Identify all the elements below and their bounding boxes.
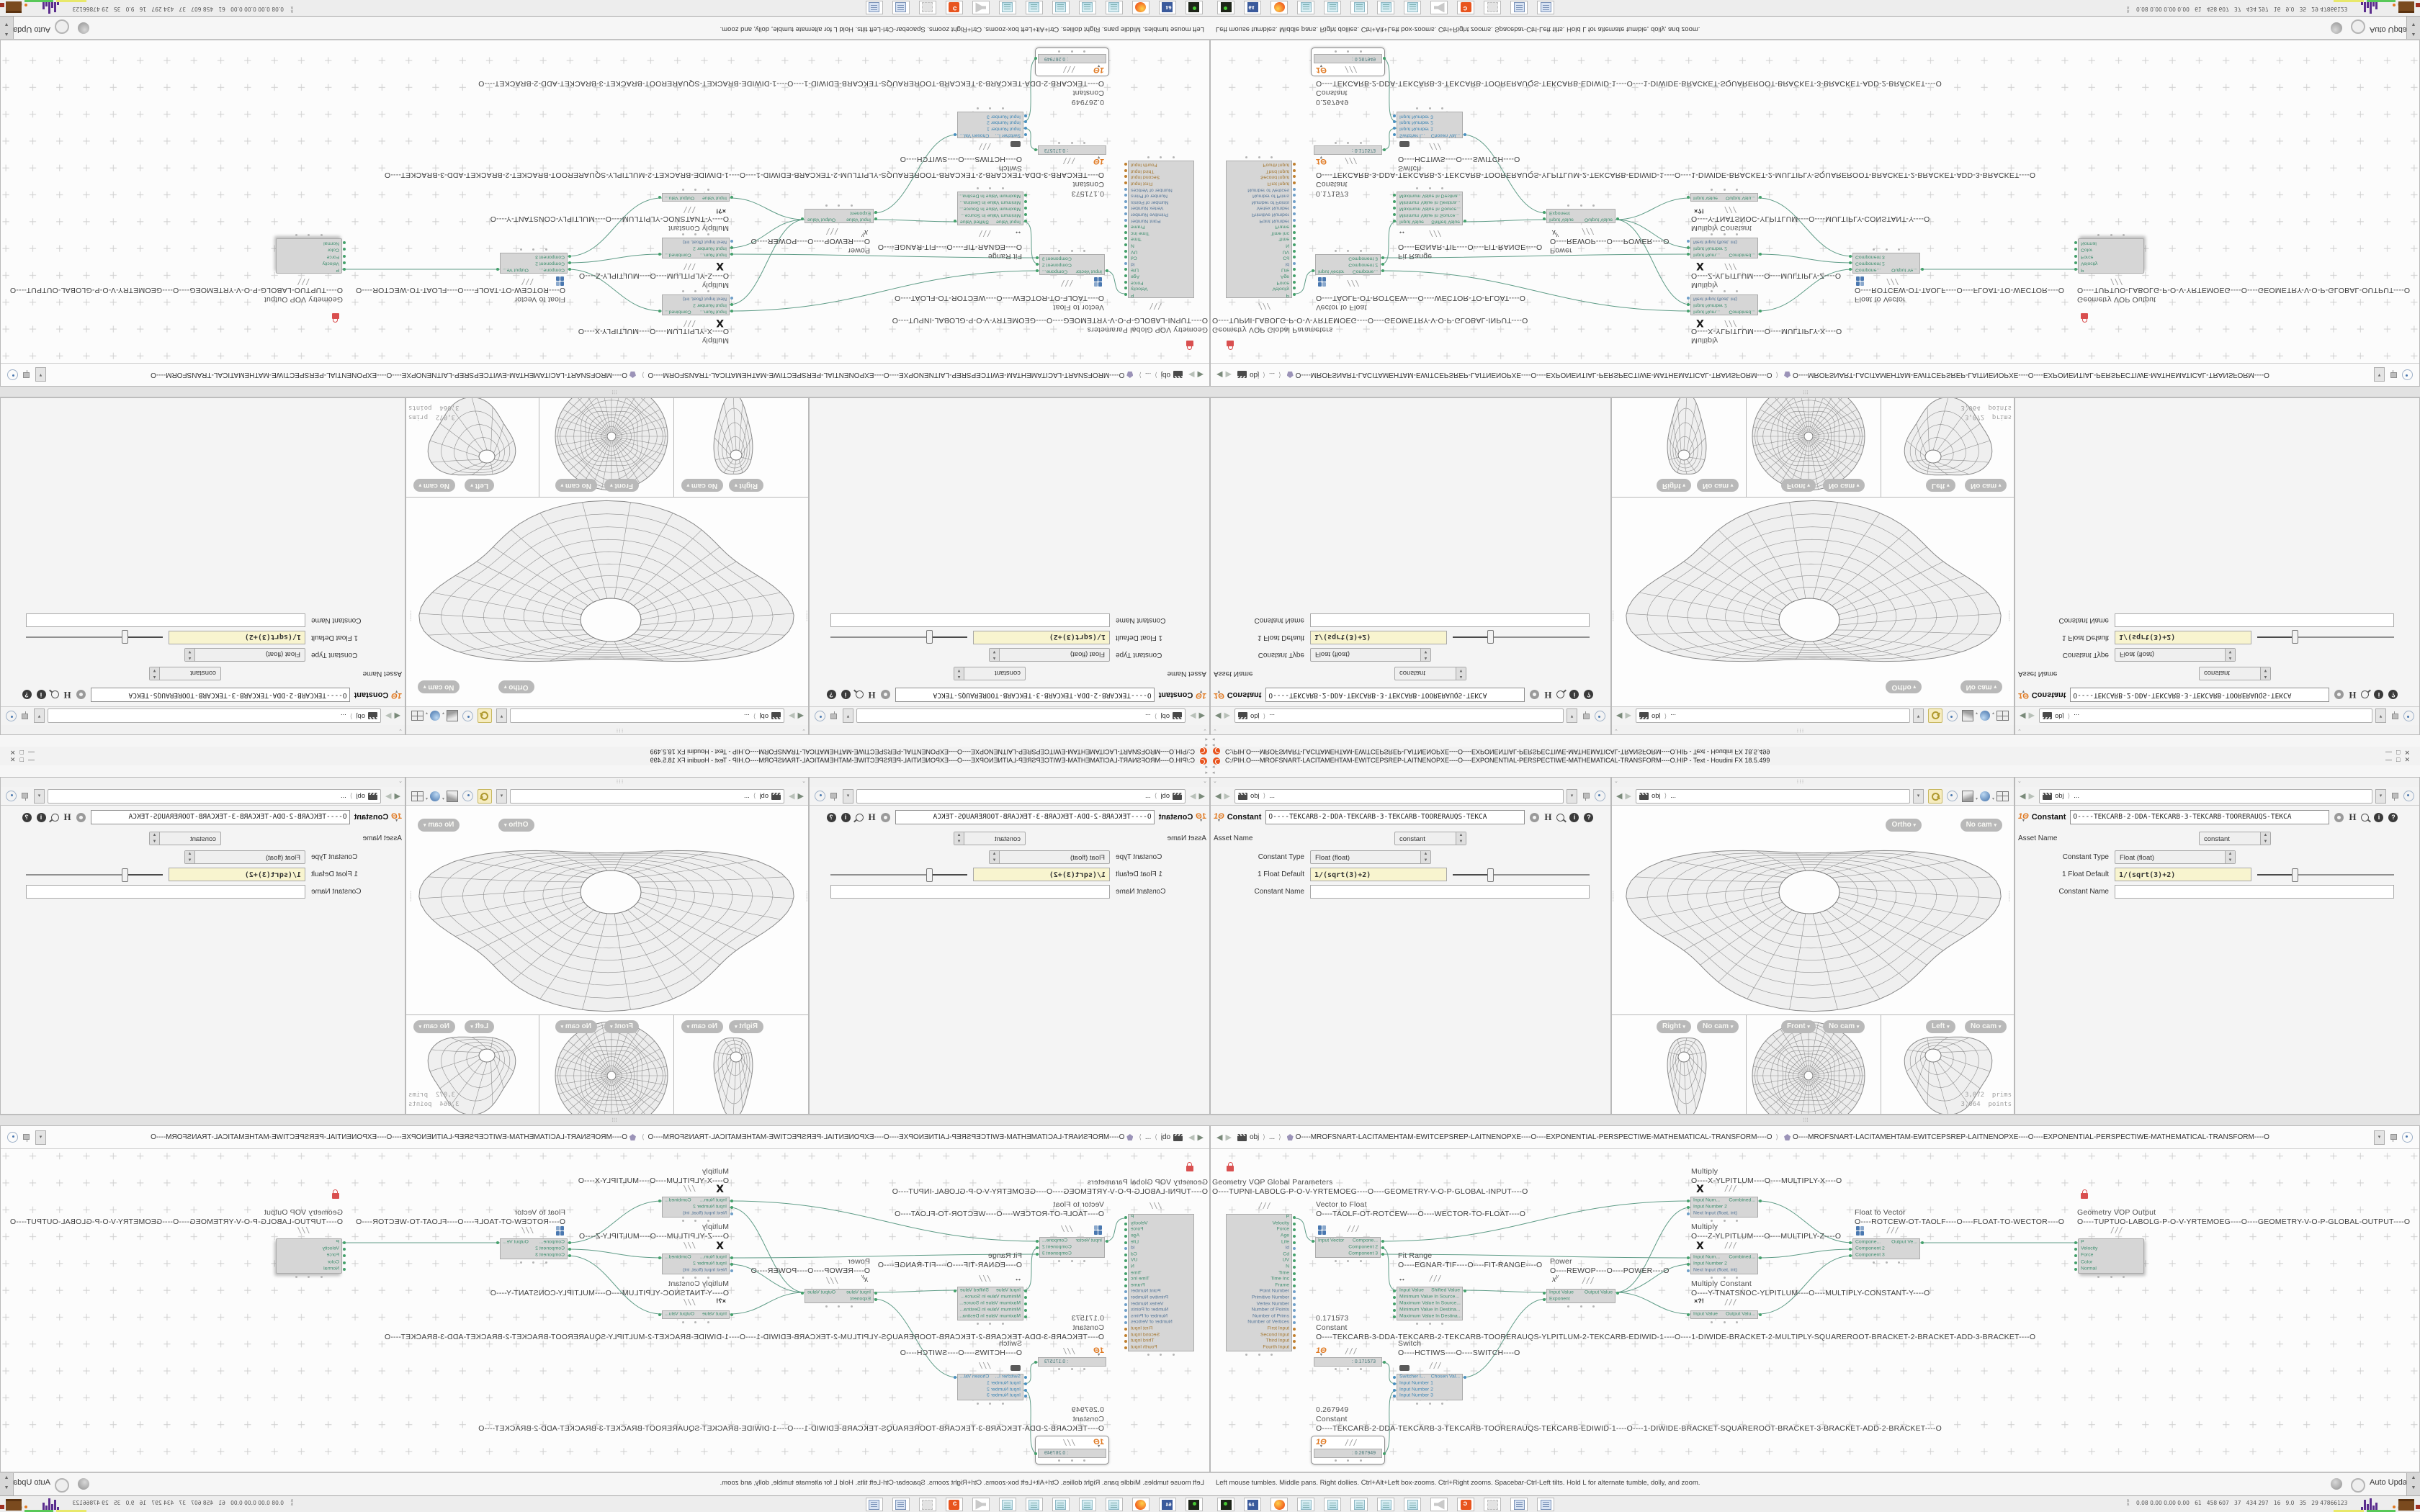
vop-node-geo_output[interactable]: PVelocityForceColorNormal — [276, 1238, 342, 1274]
node-wire[interactable] — [1615, 198, 1690, 220]
vop-node-floattovec[interactable]: Compone...Output Ve...Component 2Compone… — [500, 1238, 568, 1259]
breadcrumb-ellipsis[interactable]: ... — [1269, 792, 1275, 800]
taskbar-item-notepad[interactable] — [1106, 1498, 1123, 1511]
node-flags[interactable] — [1245, 156, 1273, 158]
taskbar-item-script-blue[interactable] — [1510, 1, 1528, 14]
sub-view-right[interactable]: Right ▾ No cam ▾ — [1612, 398, 1747, 497]
layout-grid-icon[interactable] — [411, 711, 423, 721]
breadcrumb[interactable]: obj ⟩ ... — [48, 709, 381, 724]
output-port[interactable] — [658, 1313, 661, 1316]
forward-icon[interactable]: ▶ — [1625, 711, 1631, 721]
vop-node-power[interactable]: Input ValueOutput ValueExponent — [1546, 209, 1615, 223]
stepper-icon[interactable]: ▲▼ — [954, 667, 964, 680]
key-handles-icon[interactable] — [478, 789, 492, 804]
vop-node-constant2[interactable]: 1Θ///: 0.267949 — [1311, 1436, 1385, 1464]
float-default-slider[interactable] — [1453, 631, 1590, 644]
minimize-button[interactable]: — — [2385, 756, 2396, 763]
view-sphere-icon[interactable] — [1980, 711, 1990, 721]
node-flags[interactable] — [1567, 204, 1595, 207]
output-port[interactable] — [1759, 1313, 1762, 1316]
float-default-slider[interactable] — [830, 868, 967, 881]
radial-menu-icon[interactable] — [2403, 711, 2414, 721]
pin-icon[interactable] — [1582, 712, 1590, 721]
taskbar-item-houdini-disk-64[interactable] — [1244, 1498, 1261, 1511]
vop-node-constant2[interactable]: 1Θ///: 0.267949 — [1035, 48, 1109, 76]
pin-icon[interactable] — [23, 371, 30, 379]
breadcrumb-ellipsis[interactable]: ... — [1269, 371, 1275, 379]
pin-icon[interactable] — [830, 712, 838, 721]
path-dropdown[interactable]: ▾ — [496, 709, 507, 724]
node-wire[interactable] — [1295, 271, 1315, 294]
output-port[interactable] — [1124, 219, 1127, 222]
taskbar-item-houdini-logo[interactable] — [1457, 1498, 1474, 1511]
node-wire[interactable] — [730, 220, 805, 305]
output-port[interactable] — [1293, 1303, 1296, 1306]
pane-stow-bar[interactable]: ⌄ — [1211, 778, 1610, 788]
node-wire[interactable] — [1023, 1362, 1038, 1384]
input-port[interactable] — [343, 1248, 346, 1251]
taskbar-item-notepad[interactable] — [999, 1, 1016, 14]
window-title-bar[interactable]: C:/PIH.O----MROFSNART-LACITAMEHTAM-EWITC… — [1210, 746, 2420, 756]
output-port[interactable] — [1034, 1452, 1037, 1455]
radial-menu-icon[interactable] — [1947, 711, 1958, 721]
breadcrumb-vop[interactable]: O----MROFSNART-LACITAMEHTAM-EWITCEPSREP-… — [46, 371, 627, 379]
node-flags[interactable] — [1567, 1305, 1595, 1308]
radial-menu-icon[interactable] — [6, 711, 17, 721]
input-port[interactable] — [1687, 196, 1690, 199]
splitter-grip-icon[interactable]: ⁝⁝⁝ — [611, 1117, 617, 1123]
output-port[interactable] — [1293, 1284, 1296, 1287]
float-default-input[interactable]: 1/(sqrt(3)+2) — [2115, 868, 2251, 881]
constant-value-bar[interactable]: : 0.267949 — [1038, 1449, 1106, 1458]
lock-icon[interactable] — [2081, 313, 2088, 319]
taskbar-item-notepad[interactable] — [1377, 1, 1394, 14]
taskbar-item-notepad[interactable] — [1079, 1498, 1096, 1511]
stepper-icon[interactable]: ▲▼ — [185, 649, 195, 661]
taskbar-item-speaker[interactable] — [1430, 1498, 1448, 1511]
input-port[interactable] — [730, 1313, 733, 1316]
info-icon[interactable]: i — [37, 690, 46, 700]
stepper-icon[interactable]: ▲▼ — [2260, 832, 2270, 845]
stepper-icon[interactable]: ▲▼ — [150, 832, 160, 845]
output-port[interactable] — [1293, 1272, 1296, 1275]
constant-name-input[interactable] — [830, 885, 1110, 899]
view-camera-pill[interactable]: Front ▾ — [1781, 479, 1816, 492]
forward-icon[interactable]: ▶ — [2028, 791, 2034, 801]
constant-vop-icon[interactable]: 1Θ — [1214, 812, 1224, 823]
float-default-input[interactable]: 1/(sqrt(3)+2) — [973, 868, 1110, 881]
magnifier-icon[interactable] — [1556, 691, 1564, 699]
node-flags[interactable] — [1059, 50, 1086, 53]
output-port[interactable] — [1464, 1290, 1466, 1292]
node-wire[interactable] — [730, 1292, 805, 1314]
tray-chevron-icon[interactable]: ∧∧ — [290, 6, 294, 13]
asset-name-select[interactable]: constant▲▼ — [2199, 667, 2271, 680]
forward-icon[interactable]: ▶ — [1188, 1133, 1194, 1142]
input-port[interactable] — [568, 1254, 571, 1257]
slider-knob[interactable] — [927, 630, 933, 644]
node-flags[interactable] — [1335, 1260, 1362, 1263]
no-cam-pill[interactable]: No cam ▾ — [681, 479, 723, 492]
node-wire[interactable] — [874, 220, 957, 222]
vop-node-vectofloat[interactable]: Input VectorCompone...Component 2Compone… — [1039, 1237, 1105, 1258]
node-flags[interactable] — [1711, 1321, 1738, 1324]
breadcrumb-geo[interactable]: O----MROFSNART-LACITAMEHTAM-EWITCEPSREP-… — [647, 371, 1124, 379]
constant-name-input[interactable] — [2115, 885, 2394, 899]
constant-name-input[interactable] — [1310, 885, 1590, 899]
stepper-icon[interactable]: ▲▼ — [2225, 851, 2235, 863]
node-name-field[interactable]: O----TEKCARB-2-DDA-TEKCARB-3-TEKCARB-TOO… — [2070, 688, 2329, 702]
gear-icon[interactable] — [1530, 690, 1539, 700]
output-port[interactable] — [1124, 169, 1127, 172]
vop-node-floattovec[interactable]: Compone...Output Ve...Component 2Compone… — [500, 253, 568, 274]
minimize-button[interactable]: — — [2385, 749, 2396, 756]
view-sphere-icon[interactable] — [430, 791, 440, 801]
back-icon[interactable]: ◀ — [1215, 791, 1221, 801]
help-icon[interactable]: ? — [2388, 813, 2398, 822]
constant-value-bar[interactable]: : 0.267949 — [1038, 54, 1106, 63]
breadcrumb[interactable]: obj ⟩ ... — [856, 709, 1186, 724]
help-icon[interactable]: ? — [1584, 690, 1593, 700]
lock-icon[interactable] — [1186, 341, 1193, 346]
help-icon[interactable]: ? — [2388, 690, 2398, 700]
stepper-icon[interactable]: ▲▼ — [2260, 667, 2270, 680]
pin-icon[interactable] — [2391, 792, 2398, 801]
constant-value-bar[interactable]: : 0.267949 — [1314, 54, 1382, 63]
sync-icon[interactable] — [55, 19, 69, 34]
stepper-icon[interactable]: ▲▼ — [185, 851, 195, 863]
help-icon[interactable]: ? — [1584, 813, 1593, 822]
output-port[interactable] — [658, 196, 661, 199]
node-name-field[interactable]: O----TEKCARB-2-DDA-TEKCARB-3-TEKCARB-TOO… — [1265, 688, 1525, 702]
window-title-bar[interactable]: C:/PIH.O----MROFSNART-LACITAMEHTAM-EWITC… — [0, 756, 1210, 766]
constant-type-select[interactable]: Float (float)▲▼ — [184, 648, 305, 662]
help-icon[interactable]: ? — [827, 690, 836, 700]
breadcrumb-ellipsis[interactable]: ... — [1670, 712, 1676, 720]
input-port[interactable] — [1849, 1254, 1852, 1257]
constant-value-bar[interactable]: : 0.171573 — [1038, 1357, 1106, 1367]
breadcrumb-root[interactable]: obj — [1250, 371, 1259, 379]
vop-network-graph[interactable]: Geometry VOP Global ParametersO----TUPNI… — [1211, 1149, 2419, 1472]
forward-icon[interactable]: ▶ — [1225, 1133, 1231, 1142]
vop-node-constant2[interactable]: 1Θ///: 0.267949 — [1035, 1436, 1109, 1464]
input-port[interactable] — [1024, 127, 1027, 130]
vop-node-globalparams[interactable]: PVelocityForceAgeLifeIdCdUVNTimeTime Inc… — [1226, 1214, 1292, 1351]
breadcrumb-ellipsis[interactable]: ... — [1670, 792, 1676, 800]
input-port[interactable] — [1024, 133, 1027, 136]
slider-knob[interactable] — [122, 868, 129, 882]
slider-knob[interactable] — [1487, 630, 1494, 644]
input-port[interactable] — [2074, 1248, 2077, 1251]
taskbar-item-firefox[interactable] — [1270, 1, 1288, 14]
back-icon[interactable]: ◀ — [1616, 711, 1622, 721]
taskbar-item-houdini-disk-64[interactable] — [1244, 1, 1261, 14]
breadcrumb-ellipsis[interactable]: ... — [1145, 1133, 1151, 1141]
output-port[interactable] — [1616, 1292, 1619, 1295]
breadcrumb-ellipsis[interactable]: ... — [744, 712, 750, 720]
vop-node-multiply_z[interactable]: Input Num...Combined...Input Number 2Nex… — [662, 1254, 730, 1274]
view-camera-pill[interactable]: Front ▾ — [1781, 1020, 1816, 1033]
constant-type-select[interactable]: Float (float)▲▼ — [2115, 648, 2236, 662]
taskbar-item-notepad[interactable] — [1106, 1, 1123, 14]
breadcrumb-vop[interactable]: O----MROFSNART-LACITAMEHTAM-EWITCEPSREP-… — [46, 1133, 627, 1141]
float-default-input[interactable]: 1/(sqrt(3)+2) — [1310, 868, 1447, 881]
output-port[interactable] — [1293, 1334, 1296, 1337]
node-flags[interactable] — [977, 107, 1004, 109]
gear-icon[interactable] — [1530, 813, 1539, 822]
sub-view-front[interactable]: Front ▾ No cam ▾ — [539, 1015, 673, 1114]
shading-cube-icon[interactable] — [447, 711, 458, 722]
radial-menu-icon[interactable] — [7, 1132, 18, 1143]
asset-name-select[interactable]: constant▲▼ — [149, 832, 221, 845]
lock-icon[interactable] — [2081, 1193, 2088, 1199]
input-port[interactable] — [2074, 1241, 2077, 1244]
vop-node-switch[interactable]: Switcher I...Chosen Val...Input Number 1… — [957, 1374, 1023, 1400]
magnifier-icon[interactable] — [856, 814, 864, 822]
vop-network-graph[interactable]: Geometry VOP Global ParametersO----TUPNI… — [1, 40, 1209, 363]
back-icon[interactable]: ◀ — [1198, 370, 1204, 379]
back-icon[interactable]: ◀ — [1199, 791, 1205, 801]
node-wire[interactable] — [568, 254, 662, 263]
restore-button[interactable]: □ — [16, 749, 24, 756]
breadcrumb-ellipsis[interactable]: ... — [2074, 712, 2079, 720]
breadcrumb[interactable]: obj ⟩ ... — [1636, 789, 1910, 804]
minimize-button[interactable]: — — [24, 749, 35, 756]
info-icon[interactable]: i — [37, 813, 46, 822]
slider-knob[interactable] — [122, 630, 129, 644]
output-port[interactable] — [1293, 169, 1296, 172]
shading-cube-icon[interactable] — [1962, 791, 1973, 802]
forward-icon[interactable]: ▶ — [2028, 711, 2034, 721]
node-wire[interactable] — [1758, 254, 1852, 263]
radial-menu-icon[interactable] — [7, 369, 18, 380]
slider-knob[interactable] — [927, 868, 933, 882]
sync-icon[interactable] — [2351, 19, 2365, 34]
forward-icon[interactable]: ▶ — [1224, 791, 1229, 801]
taskbar-item-notepad[interactable] — [1404, 1, 1421, 14]
input-port[interactable] — [730, 1200, 733, 1202]
update-mode-stepper[interactable]: ▲▼ — [2406, 1473, 2420, 1495]
vop-node-globalparams[interactable]: PVelocityForceAgeLifeIdCdUVNTimeTime Inc… — [1128, 1214, 1194, 1351]
forward-icon[interactable]: ▶ — [1188, 370, 1194, 379]
float-default-slider[interactable] — [830, 631, 967, 644]
taskbar-item-houdini-disk-64[interactable] — [1159, 1, 1176, 14]
radial-menu-icon[interactable] — [462, 711, 473, 721]
output-port[interactable] — [1124, 1284, 1127, 1287]
back-icon[interactable]: ◀ — [798, 791, 804, 801]
node-wire[interactable] — [1105, 271, 1125, 294]
restore-button[interactable]: □ — [2396, 756, 2404, 763]
forward-icon[interactable]: ▶ — [1224, 711, 1229, 721]
float-default-slider[interactable] — [26, 631, 163, 644]
float-default-input[interactable]: 1/(sqrt(3)+2) — [973, 631, 1110, 644]
taskbar-item-ghost-app[interactable] — [919, 1, 936, 14]
float-default-input[interactable]: 1/(sqrt(3)+2) — [169, 631, 305, 644]
vop-node-constant1[interactable]: 1Θ///: 0.171573 — [1038, 1346, 1106, 1371]
node-name-field[interactable]: O----TEKCARB-2-DDA-TEKCARB-3-TEKCARB-TOO… — [895, 688, 1155, 702]
pane-stow-bar[interactable]: ⌄⁝⁝⁝ — [1612, 778, 2014, 788]
output-port[interactable] — [1759, 1200, 1762, 1202]
pane-stow-bar[interactable]: ⌄ — [810, 778, 1209, 788]
output-port[interactable] — [1124, 1315, 1127, 1318]
view-camera-pill[interactable]: Left ▾ — [465, 1020, 494, 1033]
vop-node-globalparams[interactable]: PVelocityForceAgeLifeIdCdUVNTimeTime Inc… — [1128, 161, 1194, 298]
output-port[interactable] — [1124, 1346, 1127, 1349]
forward-icon[interactable]: ▶ — [789, 791, 794, 801]
no-cam-pill[interactable]: No cam ▾ — [413, 1020, 455, 1033]
taskbar-item-notepad[interactable] — [1026, 1, 1043, 14]
key-handles-icon[interactable] — [1928, 789, 1942, 804]
constant-vop-icon[interactable]: 1Θ — [2018, 812, 2029, 823]
magnifier-icon[interactable] — [856, 691, 864, 699]
constant-name-input[interactable] — [1310, 613, 1590, 627]
output-port[interactable] — [1034, 1361, 1037, 1364]
node-wire[interactable] — [1105, 1218, 1125, 1241]
help-icon[interactable]: ? — [827, 813, 836, 822]
lock-icon[interactable] — [332, 1193, 339, 1199]
constant-value-bar[interactable]: : 0.171573 — [1038, 145, 1106, 155]
output-port[interactable] — [954, 133, 956, 136]
node-flags[interactable] — [1059, 141, 1086, 144]
breadcrumb-root[interactable]: obj — [1652, 712, 1661, 720]
taskbar-item-notepad[interactable] — [1350, 1, 1368, 14]
output-port[interactable] — [1124, 231, 1127, 234]
view-camera-pill[interactable]: Ortho ▾ — [1886, 819, 1922, 832]
close-button[interactable]: ✕ — [6, 756, 16, 763]
path-dropdown[interactable]: ▾ — [1913, 709, 1924, 724]
constant-vop-icon[interactable]: 1Θ — [1196, 690, 1206, 701]
input-port[interactable] — [1024, 1290, 1027, 1292]
breadcrumb-ellipsis[interactable]: ... — [1269, 1133, 1275, 1141]
radial-menu-icon[interactable] — [2402, 369, 2413, 380]
input-port[interactable] — [1393, 133, 1396, 136]
path-dropdown[interactable]: ▾ — [2374, 368, 2385, 382]
view-camera-pill[interactable]: Right ▾ — [729, 479, 763, 492]
node-wire[interactable] — [1758, 1249, 1852, 1258]
input-port[interactable] — [1687, 1206, 1690, 1209]
path-dropdown[interactable]: ▾ — [35, 368, 46, 382]
close-button[interactable]: ✕ — [2404, 756, 2414, 763]
breadcrumb-root[interactable]: obj — [1161, 1133, 1170, 1141]
magnifier-icon[interactable] — [2361, 814, 2369, 822]
pane-stow-bar[interactable]: ⌄⁝⁝⁝ — [406, 724, 808, 734]
forward-icon[interactable]: ▶ — [1190, 711, 1196, 721]
vop-node-constant1[interactable]: 1Θ///: 0.171573 — [1314, 141, 1382, 166]
output-port[interactable] — [1383, 1452, 1386, 1455]
stepper-icon[interactable]: ▲▼ — [954, 832, 964, 845]
view-camera-pill[interactable]: Right ▾ — [1657, 1020, 1691, 1033]
taskbar-item-script-blue[interactable] — [892, 1, 910, 14]
output-port[interactable] — [1293, 1346, 1296, 1349]
node-flags[interactable] — [1147, 156, 1175, 158]
radial-menu-icon[interactable] — [1947, 791, 1958, 801]
output-port[interactable] — [1293, 200, 1296, 203]
restore-button[interactable]: □ — [16, 756, 24, 763]
node-flags[interactable] — [1711, 289, 1738, 292]
key-handles-icon[interactable] — [1928, 709, 1942, 724]
output-port[interactable] — [1293, 1328, 1296, 1331]
breadcrumb-root[interactable]: obj — [1652, 792, 1661, 800]
back-icon[interactable]: ◀ — [1616, 791, 1622, 801]
sub-view-left[interactable]: Left ▾ No cam ▾ 3,072 prims3,064 points — [406, 398, 539, 497]
output-port[interactable] — [1381, 1240, 1384, 1243]
pane-stow-bar[interactable]: ⌄ — [810, 724, 1209, 734]
sub-view-left[interactable]: Left ▾ No cam ▾ 3,072 prims3,064 points — [406, 1015, 539, 1114]
stepper-icon[interactable]: ▲▼ — [990, 649, 1000, 661]
node-name-field[interactable]: O----TEKCARB-2-DDA-TEKCARB-3-TEKCARB-TOO… — [895, 810, 1155, 824]
sync-icon[interactable] — [55, 1478, 69, 1493]
constant-name-input[interactable] — [2115, 613, 2394, 627]
node-wire[interactable] — [1382, 1362, 1397, 1384]
vop-node-floattovec[interactable]: Compone...Output Ve...Component 2Compone… — [1852, 253, 1920, 274]
asset-name-select[interactable]: constant▲▼ — [149, 667, 221, 680]
float-default-input[interactable]: 1/(sqrt(3)+2) — [2115, 631, 2251, 644]
houdini-h-icon[interactable]: H — [64, 811, 71, 823]
input-port[interactable] — [1024, 1296, 1027, 1299]
node-wire[interactable] — [1023, 128, 1038, 150]
vop-node-power[interactable]: Input ValueOutput ValueExponent — [805, 209, 874, 223]
view-sphere-icon[interactable] — [1980, 791, 1990, 801]
node-flags[interactable] — [1335, 1368, 1362, 1371]
back-icon[interactable]: ◀ — [395, 791, 400, 801]
info-icon[interactable]: i — [841, 813, 851, 822]
info-icon[interactable]: i — [2374, 690, 2383, 700]
taskbar-item-ghost-app[interactable] — [1484, 1498, 1501, 1511]
houdini-h-icon[interactable]: H — [2349, 689, 2356, 701]
float-default-slider[interactable] — [2257, 631, 2394, 644]
help-icon[interactable]: ? — [22, 690, 32, 700]
output-port[interactable] — [1293, 181, 1296, 184]
vop-node-multiply_constant[interactable]: Input ValueOutput Valu... — [1690, 1310, 1758, 1319]
output-port[interactable] — [1759, 1256, 1762, 1259]
input-port[interactable] — [343, 1268, 346, 1271]
window-title-bar[interactable]: C:/PIH.O----MROFSNART-LACITAMEHTAM-EWITC… — [0, 746, 1210, 756]
sub-view-front[interactable]: Front ▾ No cam ▾ — [1747, 1015, 1881, 1114]
back-icon[interactable]: ◀ — [1216, 1133, 1222, 1142]
input-port[interactable] — [1393, 114, 1396, 117]
houdini-h-icon[interactable]: H — [1544, 689, 1551, 701]
vop-node-switch[interactable]: Switcher I...Chosen Val...Input Number 1… — [1397, 1374, 1463, 1400]
path-dropdown[interactable]: ▾ — [34, 789, 45, 804]
layout-grid-icon[interactable] — [411, 791, 423, 801]
node-flags[interactable] — [1873, 248, 1900, 251]
output-port[interactable] — [1293, 212, 1296, 215]
vop-node-multiply_x[interactable]: Input Num...Combined...Input Number 2Nex… — [1690, 294, 1758, 315]
input-port[interactable] — [1393, 1382, 1396, 1385]
path-dropdown[interactable]: ▾ — [35, 1130, 46, 1145]
layout-grid-icon[interactable] — [1996, 711, 2009, 721]
houdini-h-icon[interactable]: H — [2349, 811, 2356, 823]
shading-cube-icon[interactable] — [447, 791, 458, 802]
taskbar-item-notepad[interactable] — [1324, 1498, 1341, 1511]
input-port[interactable] — [2074, 1261, 2077, 1264]
asset-name-select[interactable]: constant▲▼ — [1394, 832, 1466, 845]
output-port[interactable] — [1124, 1297, 1127, 1300]
output-port[interactable] — [1124, 212, 1127, 215]
output-port[interactable] — [1124, 274, 1127, 277]
input-port[interactable] — [1024, 1309, 1027, 1312]
memory-icon[interactable] — [78, 1478, 89, 1490]
constant-value-bar[interactable]: : 0.171573 — [1314, 1357, 1382, 1367]
output-port[interactable] — [1293, 1315, 1296, 1318]
output-port[interactable] — [1293, 1254, 1296, 1256]
vop-node-switch[interactable]: Switcher I...Chosen Val...Input Number 1… — [1397, 112, 1463, 138]
output-port[interactable] — [1464, 133, 1466, 136]
pane-stow-bar[interactable]: ⌄ — [2015, 724, 2419, 734]
output-port[interactable] — [1293, 262, 1296, 265]
memory-icon[interactable] — [2331, 22, 2342, 34]
stepper-icon[interactable]: ▲▼ — [1456, 832, 1466, 845]
